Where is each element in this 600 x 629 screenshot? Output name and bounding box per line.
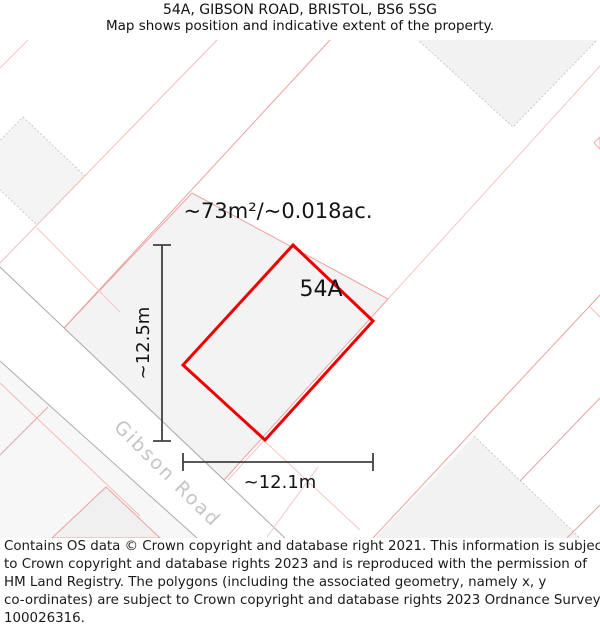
area-label: ~73m²/~0.018ac. [183, 199, 372, 223]
height-dimension-label: ~12.5m [133, 307, 154, 380]
map-canvas: Gibson Road ~73m²/~0.018ac. 54A ~12.5m ~… [0, 0, 600, 625]
footer-line: co-ordinates) are subject to Crown copyr… [4, 592, 596, 610]
width-dimension-label: ~12.1m [244, 472, 317, 493]
footer-line: HM Land Registry. The polygons (includin… [4, 574, 596, 592]
property-map: Gibson Road ~73m²/~0.018ac. 54A ~12.5m ~… [0, 0, 600, 625]
page-subtitle: Map shows position and indicative extent… [0, 18, 600, 34]
page-title: 54A, GIBSON ROAD, BRISTOL, BS6 5SG [0, 2, 600, 18]
footer-line: to Crown copyright and database rights 2… [4, 556, 596, 574]
copyright-footer: Contains OS data © Crown copyright and d… [4, 538, 596, 628]
footer-line: Contains OS data © Crown copyright and d… [4, 538, 596, 556]
header: 54A, GIBSON ROAD, BRISTOL, BS6 5SG Map s… [0, 2, 600, 34]
property-number-label: 54A [299, 277, 342, 302]
footer-line: 100026316. [4, 610, 596, 628]
